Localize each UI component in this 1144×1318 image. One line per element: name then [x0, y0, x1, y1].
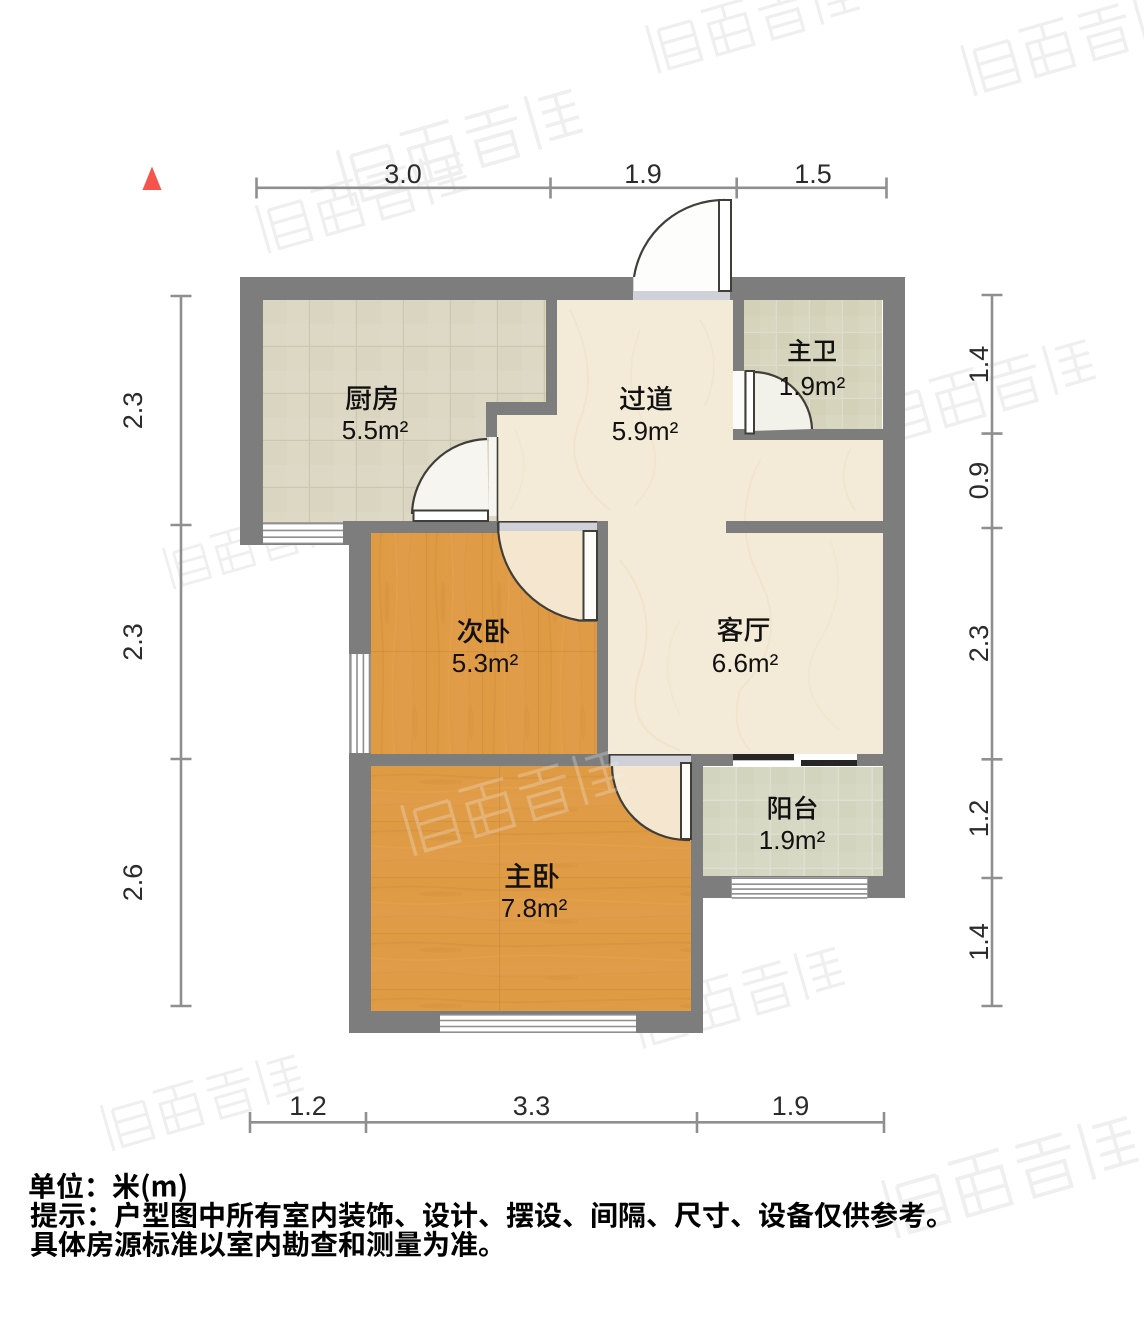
- svg-text:7.8m²: 7.8m²: [501, 893, 568, 923]
- svg-text:5.5m²: 5.5m²: [342, 415, 409, 445]
- svg-text:2.3: 2.3: [964, 625, 994, 663]
- svg-text:1.2: 1.2: [964, 800, 994, 838]
- svg-text:1.9: 1.9: [772, 1091, 810, 1121]
- svg-text:5.9m²: 5.9m²: [612, 416, 679, 446]
- svg-text:1.5: 1.5: [794, 159, 832, 189]
- svg-text:1.9m²: 1.9m²: [759, 825, 826, 855]
- svg-text:5.3m²: 5.3m²: [452, 648, 519, 678]
- svg-text:2.3: 2.3: [118, 392, 148, 430]
- svg-text:2.6: 2.6: [118, 864, 148, 902]
- svg-text:3.3: 3.3: [513, 1091, 551, 1121]
- svg-text:1.4: 1.4: [964, 923, 994, 961]
- svg-text:0.9: 0.9: [964, 462, 994, 500]
- svg-text:2.3: 2.3: [118, 623, 148, 661]
- svg-text:1.4: 1.4: [964, 346, 994, 384]
- svg-text:1.2: 1.2: [289, 1091, 327, 1121]
- svg-text:3.0: 3.0: [384, 159, 422, 189]
- svg-text:1.9m²: 1.9m²: [779, 371, 846, 401]
- svg-text:6.6m²: 6.6m²: [712, 648, 779, 678]
- svg-text:1.9: 1.9: [624, 159, 662, 189]
